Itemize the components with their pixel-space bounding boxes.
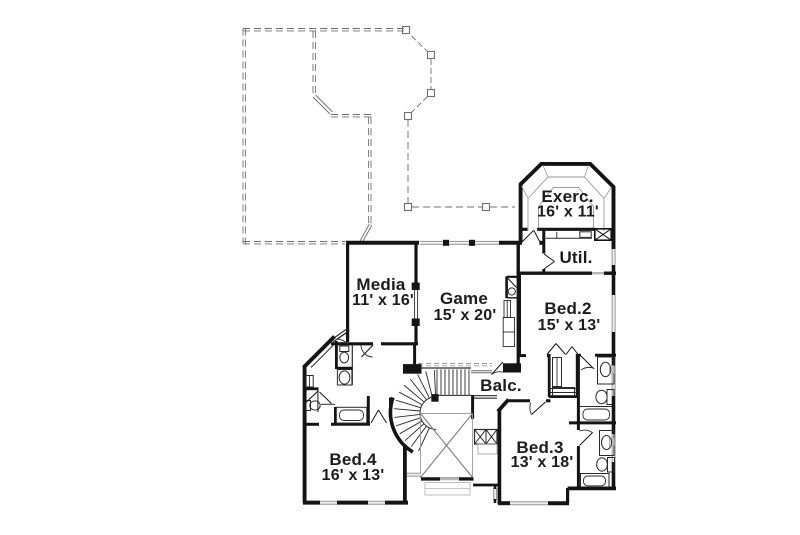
svg-text:Balc.: Balc. <box>480 376 522 395</box>
svg-text:15' x 13': 15' x 13' <box>538 317 601 334</box>
svg-text:Game: Game <box>440 289 488 308</box>
svg-text:15' x 20': 15' x 20' <box>434 307 497 324</box>
svg-text:13' x 18': 13' x 18' <box>511 454 574 471</box>
svg-text:Util.: Util. <box>559 248 592 267</box>
svg-text:16' x 13': 16' x 13' <box>322 467 385 484</box>
svg-text:16' x 11': 16' x 11' <box>537 204 599 221</box>
svg-text:Bed.2: Bed.2 <box>544 299 591 318</box>
svg-text:11' x 16': 11' x 16' <box>352 292 414 309</box>
